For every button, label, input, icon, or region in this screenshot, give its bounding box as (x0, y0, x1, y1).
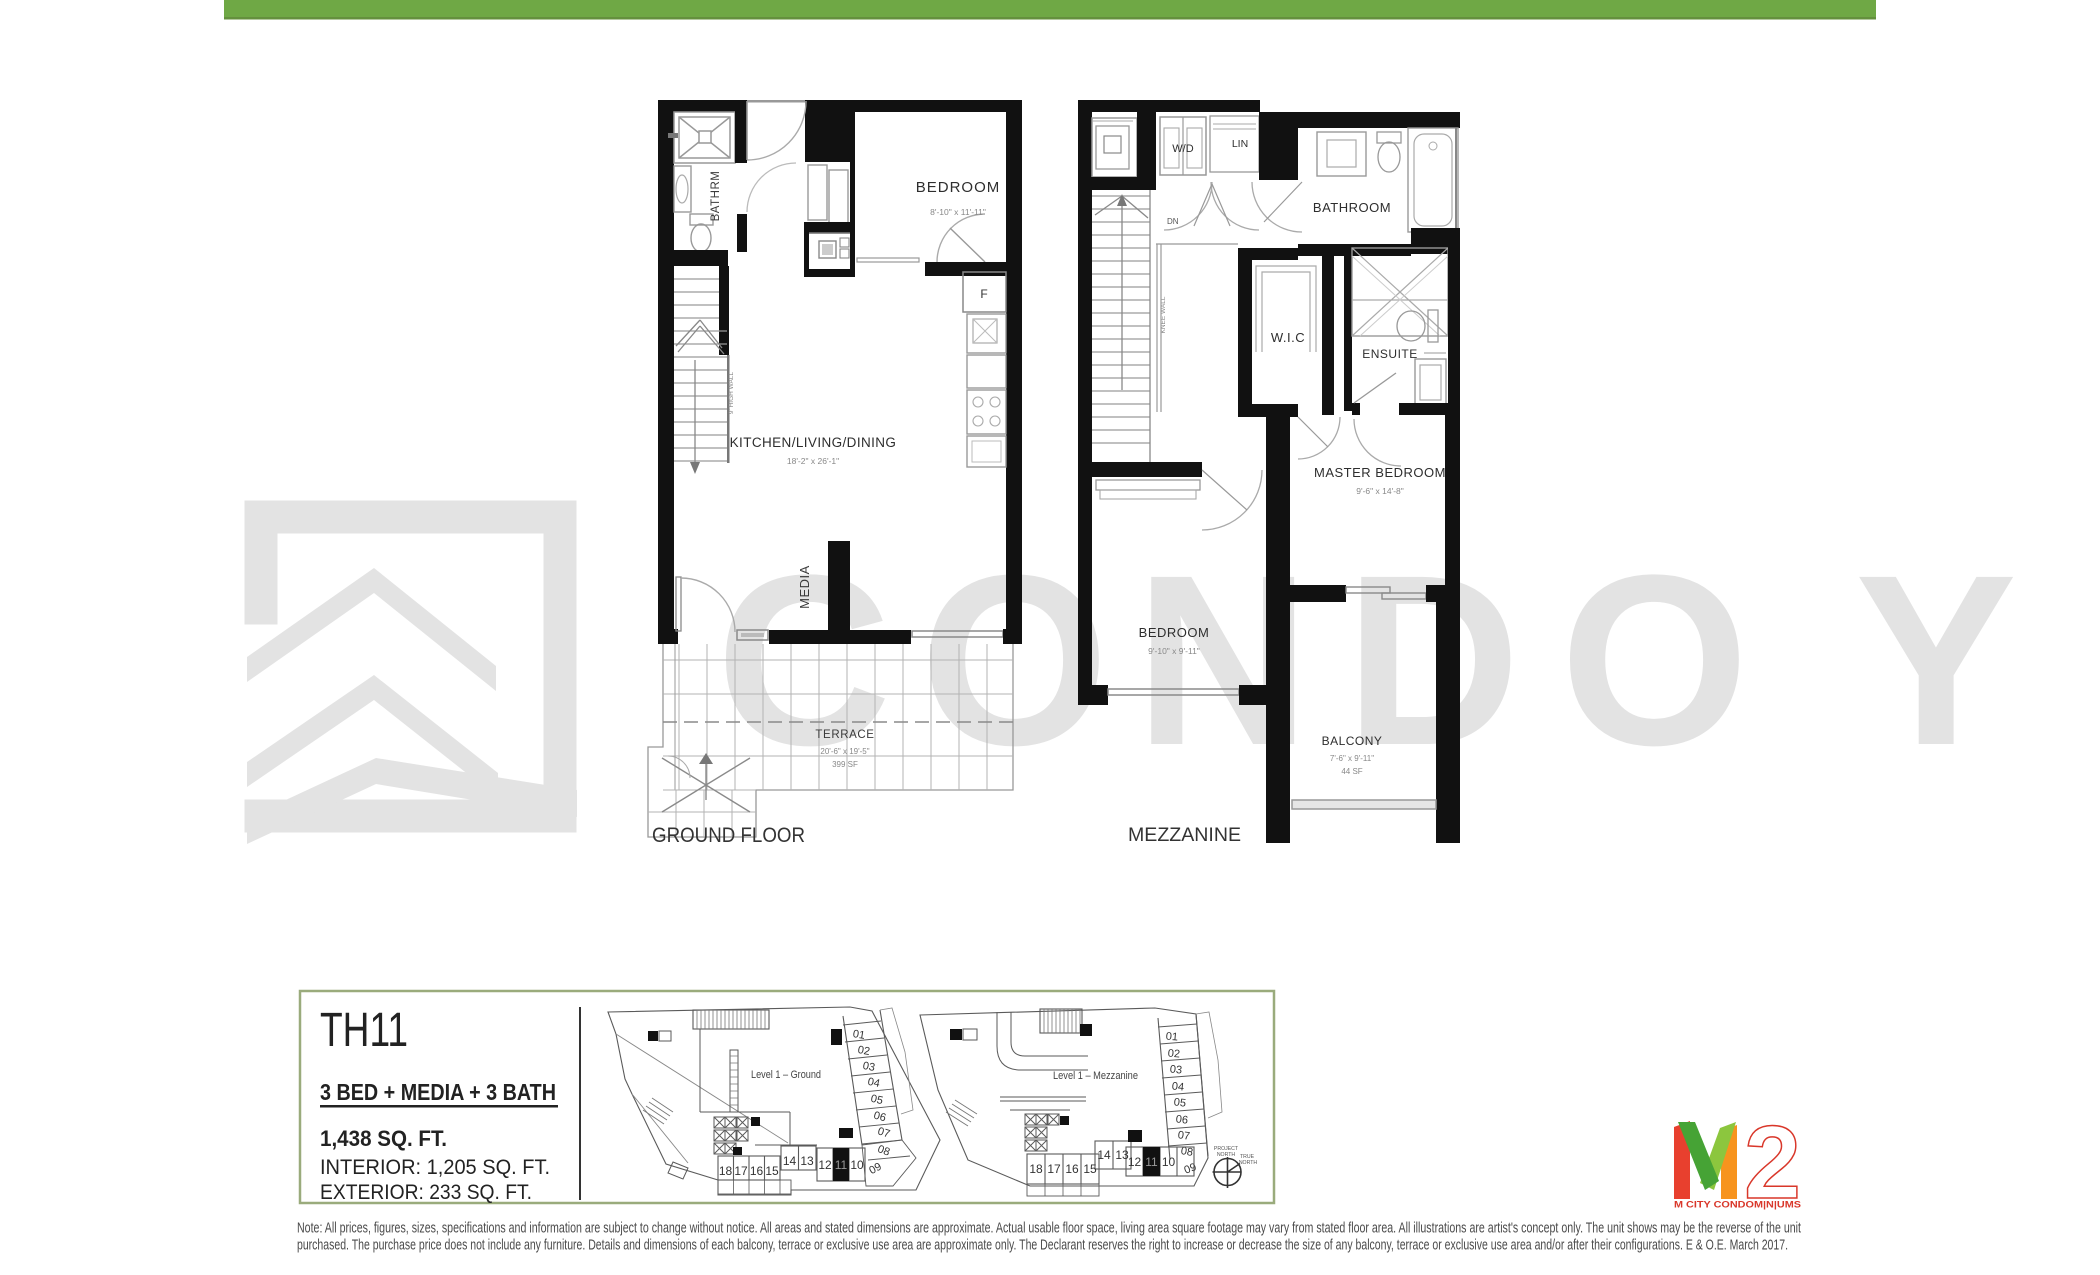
svg-text:purchased. The purchase price: purchased. The purchase price does not i… (297, 1237, 1788, 1254)
svg-text:LIN: LIN (1232, 138, 1248, 150)
svg-text:08: 08 (876, 1143, 892, 1158)
svg-text:02: 02 (1167, 1047, 1180, 1060)
svg-text:09: 09 (1183, 1161, 1199, 1176)
svg-text:7'-6" x 9'-11": 7'-6" x 9'-11" (1330, 754, 1374, 763)
svg-text:Level 1 – Ground: Level 1 – Ground (751, 1069, 821, 1081)
svg-text:17: 17 (734, 1164, 748, 1178)
svg-text:W/D: W/D (1172, 143, 1193, 155)
svg-text:M CITY CONDOM|N|UMS: M CITY CONDOM|N|UMS (1674, 1200, 1801, 1211)
svg-text:13: 13 (800, 1154, 814, 1168)
svg-text:TERRACE: TERRACE (815, 729, 874, 741)
svg-text:9'-10" x 9'-11": 9'-10" x 9'-11" (1148, 646, 1200, 656)
svg-text:12: 12 (818, 1158, 832, 1172)
svg-text:17: 17 (1047, 1162, 1061, 1176)
svg-text:DN: DN (1167, 217, 1179, 226)
svg-text:03: 03 (862, 1060, 876, 1074)
svg-text:07: 07 (876, 1125, 891, 1140)
svg-text:1,438 SQ. FT.: 1,438 SQ. FT. (320, 1126, 447, 1151)
svg-text:9'-6" x 14'-8": 9'-6" x 14'-8" (1356, 486, 1404, 496)
svg-text:ENSUITE: ENSUITE (1362, 347, 1418, 361)
svg-text:KITCHEN/LIVING/DINING: KITCHEN/LIVING/DINING (730, 435, 897, 450)
svg-text:01: 01 (1165, 1030, 1178, 1043)
svg-text:3 BED + MEDIA + 3 BATH: 3 BED + MEDIA + 3 BATH (320, 1079, 556, 1105)
svg-text:04: 04 (867, 1076, 881, 1090)
svg-text:05: 05 (1173, 1096, 1187, 1109)
svg-text:09: 09 (867, 1161, 883, 1177)
svg-text:F: F (980, 287, 987, 301)
svg-text:NORTH: NORTH (1239, 1160, 1258, 1166)
svg-text:W.I.C: W.I.C (1271, 330, 1305, 345)
svg-text:10: 10 (850, 1158, 864, 1172)
svg-text:18: 18 (1029, 1162, 1043, 1176)
svg-text:03: 03 (1169, 1063, 1182, 1076)
svg-text:MASTER BEDROOM: MASTER BEDROOM (1314, 465, 1446, 480)
svg-text:MEZZANINE: MEZZANINE (1128, 824, 1241, 846)
svg-text:06: 06 (872, 1110, 887, 1125)
svg-text:9' HIGH WALL: 9' HIGH WALL (728, 372, 735, 415)
svg-text:Note: All prices, figures, siz: Note: All prices, figures, sizes, specif… (297, 1220, 1802, 1237)
svg-text:05: 05 (869, 1093, 884, 1107)
svg-text:18'-2" x 26'-1": 18'-2" x 26'-1" (787, 456, 839, 466)
svg-text:EXTERIOR: 233 SQ. FT.: EXTERIOR: 233 SQ. FT. (320, 1181, 532, 1204)
svg-text:16: 16 (1065, 1162, 1079, 1176)
svg-text:NORTH: NORTH (1217, 1152, 1236, 1158)
svg-text:BATHROOM: BATHROOM (1313, 200, 1391, 215)
svg-text:44 SF: 44 SF (1341, 767, 1362, 776)
svg-text:BEDROOM: BEDROOM (916, 179, 1001, 196)
svg-text:15: 15 (765, 1164, 779, 1178)
svg-text:04: 04 (1171, 1080, 1184, 1093)
svg-text:BALCONY: BALCONY (1322, 734, 1383, 748)
svg-text:GROUND FLOOR: GROUND FLOOR (652, 823, 805, 847)
svg-text:10: 10 (1162, 1155, 1176, 1169)
svg-text:06: 06 (1175, 1113, 1189, 1126)
svg-text:16: 16 (750, 1164, 764, 1178)
svg-text:15: 15 (1083, 1162, 1097, 1176)
svg-text:INTERIOR: 1,205 SQ. FT.: INTERIOR: 1,205 SQ. FT. (320, 1156, 550, 1179)
svg-text:18: 18 (719, 1164, 733, 1178)
svg-text:20'-6" x 19'-5": 20'-6" x 19'-5" (820, 747, 869, 756)
svg-text:Level 1 – Mezzanine: Level 1 – Mezzanine (1053, 1070, 1138, 1082)
svg-text:02: 02 (857, 1044, 871, 1058)
svg-text:TH11: TH11 (320, 1004, 408, 1057)
svg-text:01: 01 (852, 1028, 866, 1042)
svg-text:399 SF: 399 SF (832, 760, 858, 769)
svg-text:14: 14 (783, 1154, 797, 1168)
svg-text:07: 07 (1177, 1129, 1191, 1143)
svg-text:BEDROOM: BEDROOM (1139, 625, 1210, 640)
svg-text:8'-10" x 11'-11": 8'-10" x 11'-11" (930, 207, 986, 217)
svg-text:BATHRM: BATHRM (710, 171, 722, 222)
svg-text:MEDIA: MEDIA (797, 565, 812, 609)
svg-text:11: 11 (835, 1158, 848, 1172)
svg-text:11: 11 (1145, 1155, 1158, 1169)
svg-text:14: 14 (1097, 1148, 1111, 1162)
svg-text:12: 12 (1128, 1155, 1142, 1169)
